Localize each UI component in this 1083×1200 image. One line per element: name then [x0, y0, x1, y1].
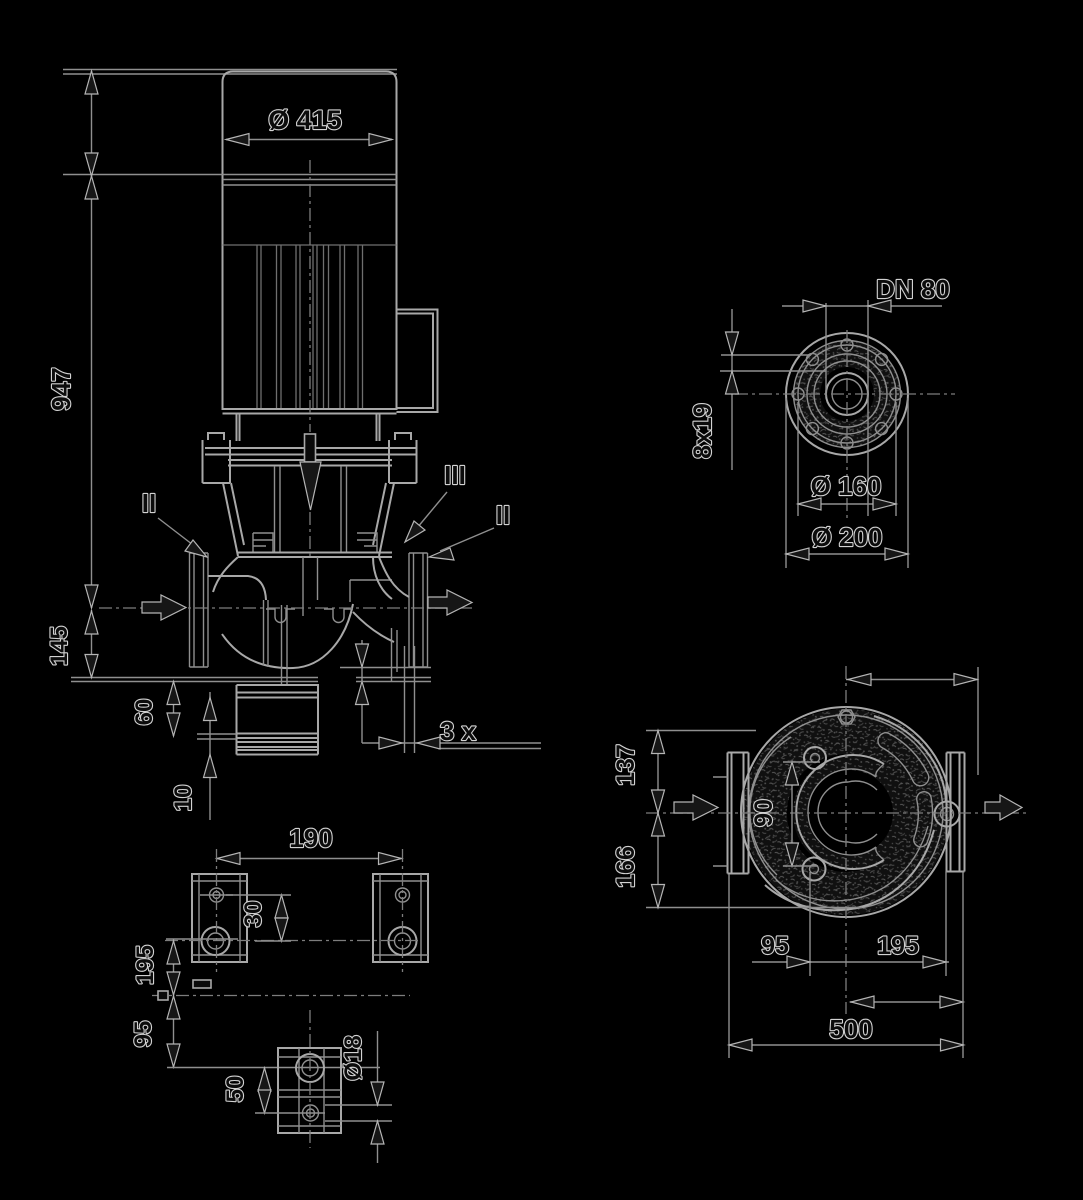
svg-text:145: 145	[46, 626, 73, 666]
svg-text:30: 30	[240, 901, 267, 928]
svg-text:Ø 160: Ø 160	[811, 471, 882, 501]
svg-text:90: 90	[750, 799, 778, 827]
svg-text:190: 190	[289, 823, 332, 853]
svg-text:195: 195	[877, 932, 919, 960]
svg-text:500: 500	[829, 1014, 872, 1044]
svg-text:166: 166	[612, 846, 640, 888]
svg-text:II: II	[496, 500, 510, 530]
svg-text:II: II	[142, 488, 156, 518]
svg-text:Ø18: Ø18	[340, 1035, 367, 1080]
svg-text:3 x: 3 x	[440, 716, 477, 746]
svg-text:60: 60	[131, 699, 158, 726]
svg-text:195: 195	[132, 945, 159, 985]
svg-text:947: 947	[46, 367, 76, 410]
svg-text:50: 50	[222, 1076, 249, 1103]
svg-text:Ø 200: Ø 200	[812, 522, 883, 552]
svg-text:10: 10	[170, 785, 197, 812]
svg-text:8x19: 8x19	[689, 403, 717, 459]
svg-text:95: 95	[761, 932, 789, 960]
svg-text:DN 80: DN 80	[876, 274, 950, 304]
svg-text:Ø 415: Ø 415	[268, 105, 342, 135]
svg-text:III: III	[444, 460, 466, 490]
svg-text:95: 95	[130, 1021, 157, 1048]
svg-text:137: 137	[612, 744, 640, 786]
